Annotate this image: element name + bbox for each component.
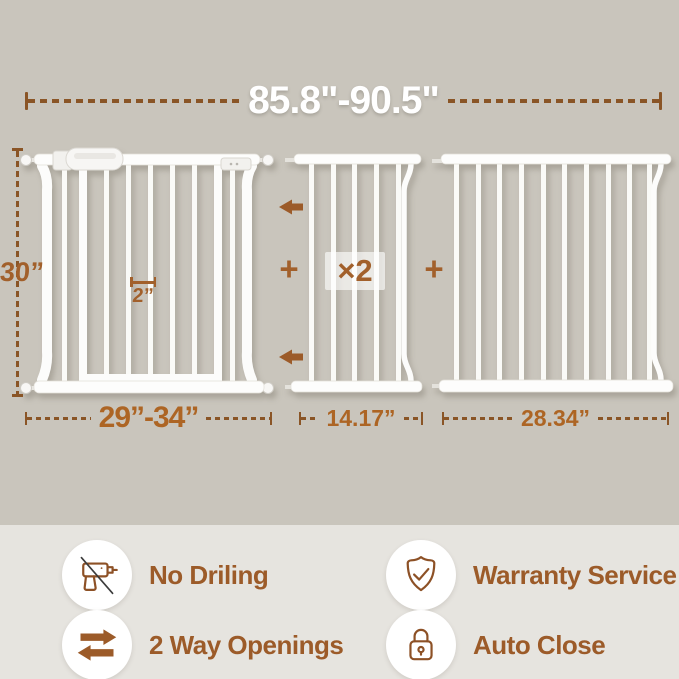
dimension-dash-line	[404, 417, 421, 420]
plus-sign: +	[274, 250, 304, 288]
no-drill-icon	[75, 553, 119, 597]
gate-latch	[221, 158, 251, 170]
small-extension-width-dimension: 14.17”	[299, 403, 423, 433]
warranty-shield-icon	[399, 553, 443, 597]
dimension-tick	[667, 412, 669, 425]
dimension-dash-line	[448, 99, 659, 103]
bar-gap-label: 2”	[128, 285, 158, 308]
dimension-tick	[421, 412, 423, 425]
total-width-dimension: 85.8"-90.5"	[25, 82, 662, 120]
dimension-line	[133, 281, 154, 284]
main-gate-width-label: 29”-34”	[99, 401, 199, 435]
feature-label: Auto Close	[473, 630, 605, 661]
arrow-left-icon	[279, 200, 303, 215]
arrow-left-icon	[279, 350, 303, 365]
large-extension-width-dimension: 28.34”	[442, 403, 669, 433]
small-extension-width-label: 14.17”	[326, 405, 395, 432]
extension-panel-large	[432, 154, 673, 392]
dimension-dash-line	[444, 417, 513, 420]
total-width-label: 85.8"-90.5"	[248, 79, 439, 123]
plus-sign: +	[419, 250, 449, 288]
feature-two-way-openings: 2 Way Openings	[62, 610, 343, 679]
gate-height-label: 30”	[0, 257, 43, 288]
feature-label: 2 Way Openings	[149, 630, 343, 661]
main-gate	[21, 148, 274, 394]
feature-warranty-service: Warranty Service	[386, 540, 676, 610]
two-way-openings-icon	[75, 623, 119, 667]
dimension-tick	[659, 92, 662, 110]
dimension-dash-line	[598, 417, 667, 420]
dimension-tick	[270, 412, 272, 425]
feature-label: No Driling	[149, 560, 268, 591]
dimension-tick	[12, 394, 23, 397]
dimension-dash-line	[301, 417, 318, 420]
feature-no-drilling: No Driling	[62, 540, 268, 610]
dimension-dash-line	[27, 417, 91, 420]
auto-close-lock-icon	[399, 623, 443, 667]
quantity-multiplier-badge: ×2	[325, 252, 385, 290]
gate-handle	[53, 148, 123, 170]
large-extension-width-label: 28.34”	[521, 405, 590, 432]
dimension-dash-line	[28, 99, 239, 103]
baby-gate-infographic: 85.8"-90.5" 30” 2” + + ×2 29”-34” 14.17”…	[0, 0, 679, 679]
feature-label: Warranty Service	[473, 560, 676, 591]
main-gate-width-dimension: 29”-34”	[25, 403, 272, 433]
pressure-mount-spindles	[21, 155, 274, 394]
dimension-dash-line	[206, 417, 270, 420]
feature-auto-close: Auto Close	[386, 610, 605, 679]
